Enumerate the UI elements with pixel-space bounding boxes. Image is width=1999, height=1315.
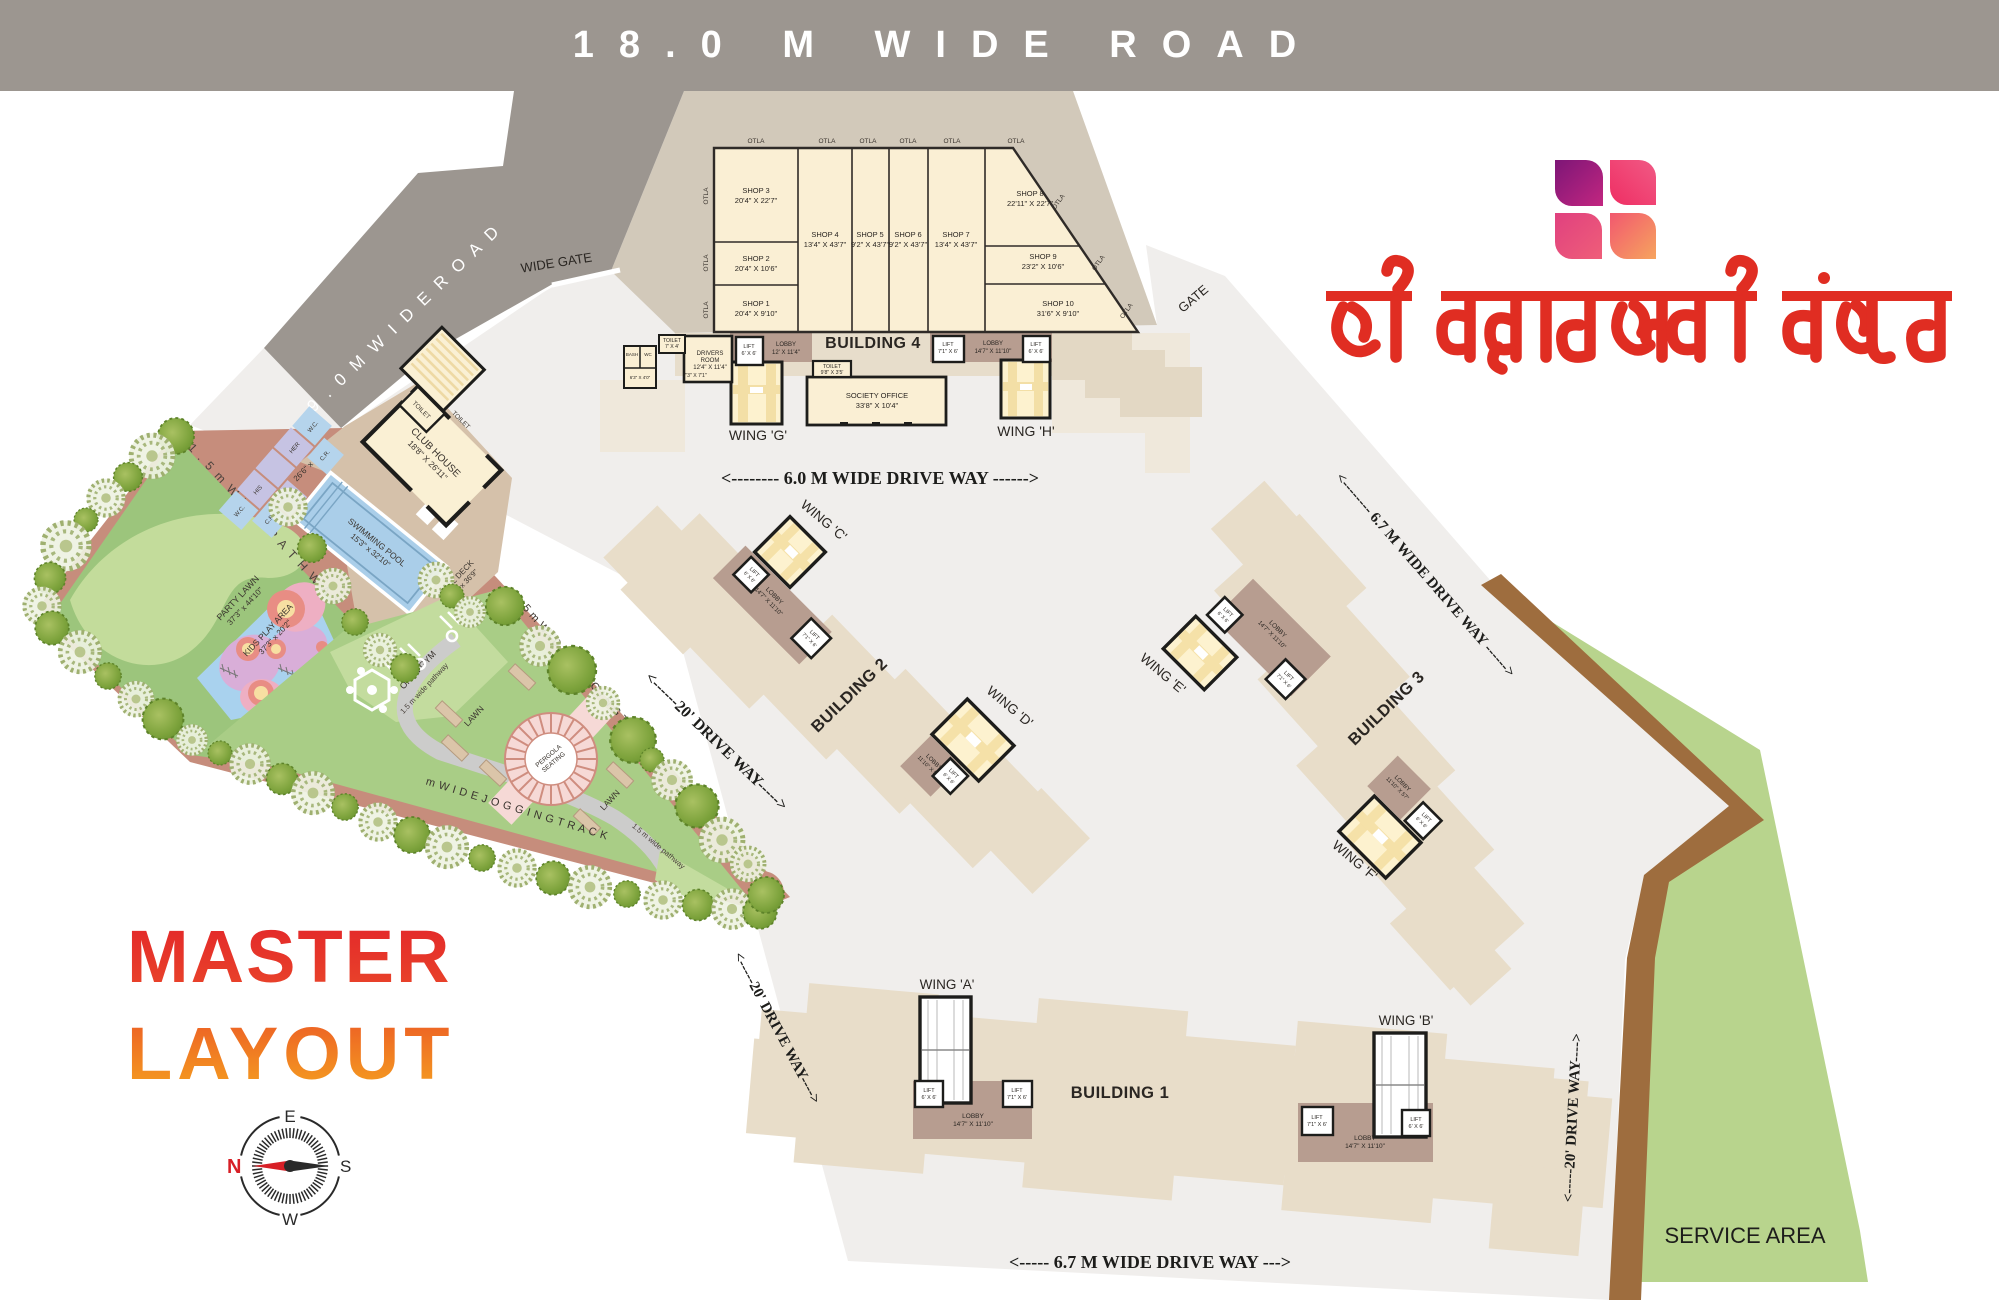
svg-text:14'7" X 11'10": 14'7" X 11'10" xyxy=(975,349,1012,355)
svg-text:SHOP 3: SHOP 3 xyxy=(742,186,769,195)
svg-text:18.0 M WIDE ROAD: 18.0 M WIDE ROAD xyxy=(573,24,1321,66)
svg-text:OTLA: OTLA xyxy=(1008,138,1026,145)
svg-text:6' X 6': 6' X 6' xyxy=(1029,349,1044,355)
svg-text:LOBBY: LOBBY xyxy=(776,342,796,348)
svg-text:WING 'G': WING 'G' xyxy=(729,427,787,443)
svg-text:<----- 6.7 M WIDE DRIVE WAY --: <----- 6.7 M WIDE DRIVE WAY ---> xyxy=(1009,1252,1291,1272)
svg-text:6' X 6': 6' X 6' xyxy=(1409,1124,1424,1130)
svg-text:31'6" X 9'10": 31'6" X 9'10" xyxy=(1037,309,1080,318)
svg-text:20'4" X 9'10": 20'4" X 9'10" xyxy=(735,309,778,318)
svg-text:MASTER: MASTER xyxy=(127,915,451,998)
svg-text:9'2" X 43'7": 9'2" X 43'7" xyxy=(851,240,890,249)
svg-text:OTLA: OTLA xyxy=(703,254,710,272)
svg-text:OTLA: OTLA xyxy=(900,138,918,145)
svg-text:WING 'H': WING 'H' xyxy=(997,423,1054,439)
svg-text:WING 'A': WING 'A' xyxy=(920,977,975,992)
svg-text:SHOP 1: SHOP 1 xyxy=(742,299,769,308)
svg-text:E: E xyxy=(284,1107,295,1126)
svg-text:BUILDING 4: BUILDING 4 xyxy=(825,335,921,352)
svg-text:SOCIETY OFFICE: SOCIETY OFFICE xyxy=(846,391,908,400)
svg-text:LIFT: LIFT xyxy=(1410,1117,1422,1123)
svg-text:BASH: BASH xyxy=(626,352,638,357)
svg-text:7'1" X 6': 7'1" X 6' xyxy=(938,349,958,355)
svg-text:SHOP 2: SHOP 2 xyxy=(742,254,769,263)
svg-text:LOBBY: LOBBY xyxy=(983,341,1003,347)
svg-text:OTLA: OTLA xyxy=(703,301,710,319)
svg-text:WC: WC xyxy=(644,352,652,357)
svg-text:LAYOUT: LAYOUT xyxy=(127,1012,454,1095)
svg-text:14'7" X 11'10": 14'7" X 11'10" xyxy=(953,1121,994,1128)
svg-text:7'1" X 6': 7'1" X 6' xyxy=(1307,1122,1327,1128)
svg-text:BUILDING 1: BUILDING 1 xyxy=(1071,1084,1170,1102)
svg-text:SHOP 10: SHOP 10 xyxy=(1042,299,1074,308)
svg-text:ROOM: ROOM xyxy=(701,358,720,364)
svg-text:SHOP 8: SHOP 8 xyxy=(1016,189,1043,198)
svg-text:SHOP 5: SHOP 5 xyxy=(856,230,883,239)
svg-text:OTLA: OTLA xyxy=(748,138,766,145)
svg-text:6'3" X 4'0": 6'3" X 4'0" xyxy=(630,375,651,380)
svg-text:20'4" X 10'6": 20'4" X 10'6" xyxy=(735,264,778,273)
svg-text:N: N xyxy=(227,1156,241,1178)
svg-text:SERVICE AREA: SERVICE AREA xyxy=(1665,1223,1826,1248)
svg-text:7'3" X 7'1": 7'3" X 7'1" xyxy=(683,373,707,379)
svg-text:LIFT: LIFT xyxy=(743,344,755,350)
svg-text:DRIVERS: DRIVERS xyxy=(697,351,724,357)
svg-text:9'8" X 3'5': 9'8" X 3'5' xyxy=(821,370,844,376)
svg-text:9'2" X 43'7": 9'2" X 43'7" xyxy=(889,240,928,249)
svg-text:7' X 4': 7' X 4' xyxy=(665,344,679,350)
svg-text:SHOP 9: SHOP 9 xyxy=(1029,252,1056,261)
svg-text:14'7" X 11'10": 14'7" X 11'10" xyxy=(1345,1143,1386,1150)
svg-text:13'4" X 43'7": 13'4" X 43'7" xyxy=(804,240,847,249)
svg-text:OTLA: OTLA xyxy=(860,138,878,145)
svg-text:LIFT: LIFT xyxy=(1311,1115,1323,1121)
svg-text:SHOP 7: SHOP 7 xyxy=(942,230,969,239)
svg-text:12'4" X 11'4": 12'4" X 11'4" xyxy=(693,365,726,371)
svg-text:22'11" X 22'7": 22'11" X 22'7" xyxy=(1007,199,1053,208)
svg-text:33'8" X 10'4": 33'8" X 10'4" xyxy=(856,401,899,410)
svg-text:S: S xyxy=(340,1157,351,1176)
svg-text:13'4" X 43'7": 13'4" X 43'7" xyxy=(935,240,978,249)
svg-text:23'2" X 10'6": 23'2" X 10'6" xyxy=(1022,262,1065,271)
svg-text:LIFT: LIFT xyxy=(1011,1088,1023,1094)
svg-text:6' X 6': 6' X 6' xyxy=(922,1095,937,1101)
svg-text:LIFT: LIFT xyxy=(942,342,954,348)
svg-text:W: W xyxy=(282,1210,298,1229)
svg-text:OTLA: OTLA xyxy=(819,138,837,145)
svg-text:12' X 11'4": 12' X 11'4" xyxy=(772,350,800,356)
svg-text:SHOP 4: SHOP 4 xyxy=(811,230,838,239)
svg-text:OTLA: OTLA xyxy=(944,138,962,145)
svg-text:WING 'B': WING 'B' xyxy=(1379,1013,1434,1028)
svg-text:<-------- 6.0 M WIDE DRIVE WAY: <-------- 6.0 M WIDE DRIVE WAY ------> xyxy=(721,468,1039,488)
svg-text:7'1" X 6': 7'1" X 6' xyxy=(1007,1095,1027,1101)
svg-text:SHOP 6: SHOP 6 xyxy=(894,230,921,239)
svg-text:OTLA: OTLA xyxy=(703,187,710,205)
svg-text:LOBBY: LOBBY xyxy=(962,1113,984,1120)
svg-text:LIFT: LIFT xyxy=(923,1088,935,1094)
svg-text:20'4" X 22'7": 20'4" X 22'7" xyxy=(735,196,778,205)
svg-text:6' X 6': 6' X 6' xyxy=(742,351,757,357)
svg-text:LIFT: LIFT xyxy=(1030,342,1042,348)
